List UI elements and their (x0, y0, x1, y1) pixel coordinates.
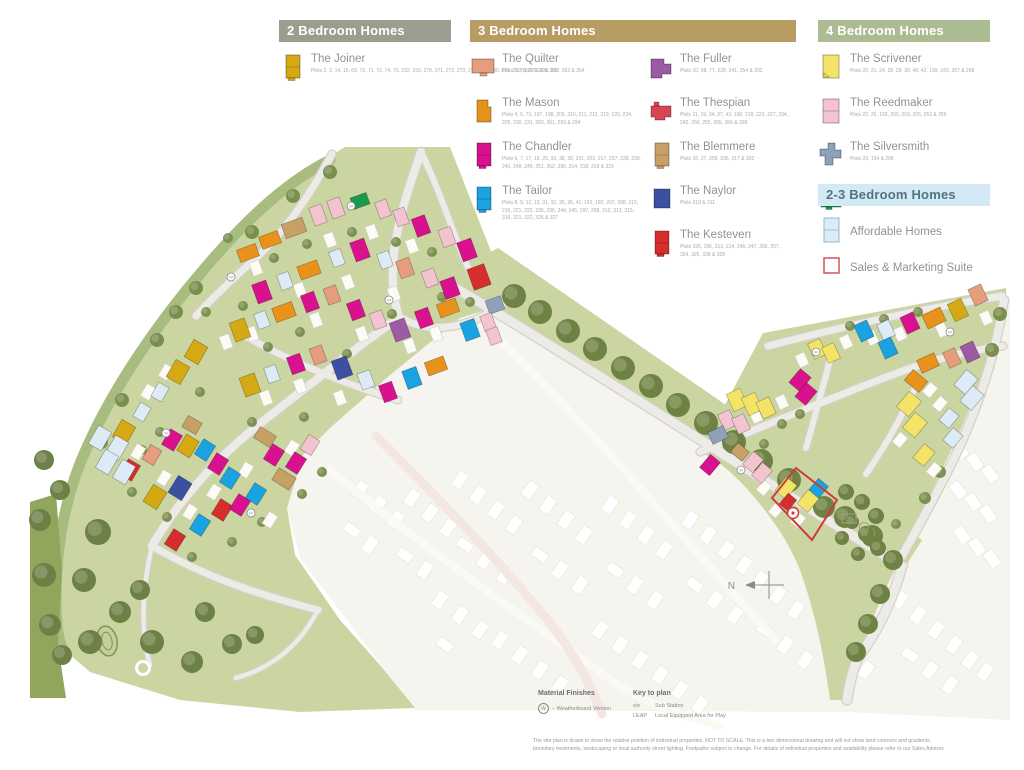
tree-highlight (80, 632, 93, 645)
tree-highlight (428, 248, 434, 254)
tree-highlight (585, 339, 598, 352)
tree-highlight (224, 234, 230, 240)
tree-highlight (287, 190, 295, 198)
key-item: LEAPLocal Equipped Area for Play (633, 713, 783, 719)
tree-highlight (318, 468, 324, 474)
roundabout (137, 662, 150, 675)
house-type-plots: Plots 23, 194 & 206 (850, 156, 980, 164)
house-type-the-naylor: The NaylorPlots 310 & 311 (648, 184, 796, 219)
legend-header-2bed: 2 Bedroom Homes (279, 20, 451, 42)
house-type-plots: Plots 20, 21, 24, 28, 29, 30, 40, 42, 19… (850, 68, 980, 76)
tree-highlight (298, 490, 304, 496)
tree-highlight (132, 582, 143, 593)
house-type-the-chandler: The ChandlerPlots 6, 7, 17, 18, 25, 33, … (470, 140, 648, 175)
tree-highlight (324, 166, 332, 174)
tree-highlight (264, 343, 270, 349)
weatherboard-badge-letter: W (249, 511, 253, 516)
house-type-name: The Fuller (680, 53, 796, 66)
tree-highlight (248, 628, 258, 638)
the-reedmaker-icon (818, 96, 844, 131)
legend-header-23bed: 2-3 Bedroom Homes (818, 184, 990, 206)
legend-section-3bed: 3 Bedroom Homes The QuilterPlots 1, 76, … (470, 20, 796, 272)
tree-highlight (641, 376, 654, 389)
tree-highlight (246, 226, 254, 234)
the-joiner-icon (279, 52, 305, 87)
legend-entries-3bed: The QuilterPlots 1, 76, 226, 229, 262, 2… (470, 52, 796, 272)
tree-highlight (558, 321, 571, 334)
leap-label: LEAP (856, 504, 868, 509)
key-item-abbr: LEAP (633, 713, 655, 719)
weatherboard-badge-letter: W (948, 330, 952, 335)
tree-highlight (920, 493, 927, 500)
the-scrivener-icon (818, 52, 844, 87)
tree-highlight (31, 511, 43, 523)
legend-entries-23bed: Affordable HomesSales & Marketing Suite (818, 216, 990, 288)
tree-highlight (300, 413, 306, 419)
tree-highlight (846, 322, 852, 328)
house-type-the-thespian: The ThespianPlots 11, 19, 34, 37, 43, 19… (648, 96, 796, 131)
sales-marketing-suite-icon (818, 251, 844, 286)
house-type-sales-marketing-suite: Sales & Marketing Suite (818, 252, 973, 284)
material-finishes-key: Material Finishes W– Weatherboard Versio… (538, 690, 628, 718)
tree-highlight (760, 440, 766, 446)
tree-highlight (188, 553, 194, 559)
tree-highlight (994, 308, 1002, 316)
house-type-plots: Plots 1, 76, 226, 229, 262, 263 & 264 (502, 68, 648, 76)
tree-highlight (142, 632, 155, 645)
house-type-the-blemmere: The BlemmerePlots 16, 27, 258, 295, 317 … (648, 140, 796, 175)
weatherboard-badge-letter: W (164, 431, 168, 436)
tree-highlight (880, 315, 886, 321)
tree-highlight (892, 520, 898, 526)
house-type-name: The Naylor (680, 185, 796, 198)
weatherboard-badge-letter: W (739, 468, 743, 473)
site-plan-page: WWWWWWWWLEAPN 2 Bedroom Homes The Joiner… (0, 0, 1024, 770)
legend-entries-2bed: The JoinerPlots 2, 3, 14, 15, 69, 70, 71… (279, 52, 451, 96)
affordable-homes-icon (818, 215, 844, 250)
house-type-name: Sales & Marketing Suite (850, 262, 973, 275)
tree-highlight (613, 358, 626, 371)
the-naylor-icon (648, 184, 674, 219)
house-type-plots: Plots 8, 9, 12, 13, 31, 32, 35, 36, 41, … (502, 200, 648, 223)
tree-highlight (224, 636, 235, 647)
weatherboard-badge-letter: W (387, 298, 391, 303)
material-finishes-title: Material Finishes (538, 690, 628, 697)
tree-highlight (872, 542, 881, 551)
key-item-label: Local Equipped Area for Play (655, 713, 726, 719)
house-type-the-mason: The MasonPlots 4, 5, 73, 197, 198, 209, … (470, 96, 648, 131)
tree-highlight (303, 240, 309, 246)
tree-highlight (914, 308, 920, 314)
house-type-the-quilter: The QuilterPlots 1, 76, 226, 229, 262, 2… (470, 52, 648, 87)
tree-highlight (986, 344, 994, 352)
tree-highlight (852, 548, 860, 556)
tree-highlight (36, 452, 47, 463)
key-item-abbr: s/s (633, 703, 655, 709)
house-type-plots: Plots 11, 19, 34, 37, 43, 190, 218, 223,… (680, 112, 796, 127)
the-thespian-icon (648, 96, 674, 131)
house-type-name: The Thespian (680, 97, 796, 110)
tree-highlight (392, 238, 398, 244)
house-type-the-tailor: The TailorPlots 8, 9, 12, 13, 31, 32, 35… (470, 184, 648, 223)
house-type-plots: Plots 22, 26, 193, 200, 203, 205, 253 & … (850, 112, 980, 120)
weatherboard-badge-letter: W (814, 350, 818, 355)
tree-highlight (88, 522, 102, 536)
weatherboard-icon: W (538, 703, 549, 714)
house-type-name: The Blemmere (680, 141, 796, 154)
the-fuller-icon (648, 52, 674, 87)
disclaimer-text: The site plan is drawn to show the relat… (533, 738, 951, 753)
material-finishes-items: W– Weatherboard Version (538, 703, 628, 714)
legend-header-4bed: 4 Bedroom Homes (818, 20, 990, 42)
house-type-plots: Plots 4, 5, 73, 197, 198, 209, 210, 211,… (502, 112, 648, 127)
house-type-name: The Tailor (502, 185, 648, 198)
tree-highlight (696, 413, 709, 426)
key-to-plan: Key to plan s/sSub StationLEAPLocal Equi… (633, 690, 783, 722)
the-kesteven-icon (648, 228, 674, 263)
house-type-plots: Plots 310 & 311 (680, 200, 796, 208)
the-blemmere-icon (648, 140, 674, 175)
key-item-label: Sub Station (655, 703, 683, 709)
tree-highlight (388, 310, 394, 316)
key-to-plan-title: Key to plan (633, 690, 783, 697)
tree-highlight (848, 644, 859, 655)
tree-highlight (438, 293, 444, 299)
tree-highlight (156, 428, 162, 434)
tree-highlight (343, 350, 349, 356)
tree-highlight (151, 334, 159, 342)
house-type-name: The Kesteven (680, 229, 796, 242)
house-type-plots: Plots 195, 196, 213, 214, 246, 247, 256,… (680, 244, 796, 259)
tree-highlight (504, 286, 517, 299)
tree-highlight (296, 328, 302, 334)
material-item: W– Weatherboard Version (538, 703, 628, 714)
tree-highlight (163, 513, 169, 519)
tree-highlight (202, 308, 208, 314)
tree-highlight (41, 616, 53, 628)
tree-highlight (348, 228, 354, 234)
key-to-plan-items: s/sSub StationLEAPLocal Equipped Area fo… (633, 703, 783, 719)
tree-highlight (190, 282, 198, 290)
tree-highlight (183, 653, 195, 665)
house-type-name: The Silversmith (850, 141, 980, 154)
house-type-the-kesteven: The KestevenPlots 195, 196, 213, 214, 24… (648, 228, 796, 263)
tree-highlight (885, 552, 896, 563)
house-type-the-reedmaker: The ReedmakerPlots 22, 26, 193, 200, 203… (818, 96, 980, 131)
tree-highlight (228, 538, 234, 544)
tree-highlight (530, 302, 543, 315)
tree-highlight (836, 532, 844, 540)
sales-suite-marker-dot (791, 511, 794, 514)
tree-highlight (872, 586, 883, 597)
tree-highlight (34, 565, 47, 578)
house-type-the-fuller: The FullerPlots 10, 68, 77, 228, 241, 25… (648, 52, 796, 87)
house-type-plots: Plots 10, 68, 77, 228, 241, 254 & 292 (680, 68, 796, 76)
house-type-name: The Mason (502, 97, 648, 110)
tree-highlight (466, 298, 472, 304)
tree-highlight (668, 395, 681, 408)
key-item: s/sSub Station (633, 703, 783, 709)
tree-highlight (870, 510, 879, 519)
tree-highlight (840, 486, 849, 495)
the-silversmith-icon (818, 140, 844, 175)
house-type-name: The Quilter (502, 53, 648, 66)
tree-highlight (796, 410, 802, 416)
house-type-the-silversmith: The SilversmithPlots 23, 194 & 206 (818, 140, 980, 175)
tree-highlight (128, 488, 134, 494)
tree-highlight (196, 388, 202, 394)
house-type-name: The Scrivener (850, 53, 980, 66)
tree-highlight (860, 616, 871, 627)
house-type-plots: Plots 16, 27, 258, 295, 317 & 320 (680, 156, 796, 164)
house-type-name: Affordable Homes (850, 226, 973, 239)
house-type-name: The Chandler (502, 141, 648, 154)
house-type-plots: Plots 6, 7, 17, 18, 25, 33, 38, 39, 201,… (502, 156, 648, 171)
tree-highlight (239, 302, 245, 308)
weatherboard-badge-letter: W (229, 275, 233, 280)
weatherboard-badge-letter: W (349, 204, 353, 209)
legend-header-3bed: 3 Bedroom Homes (470, 20, 796, 42)
tree-highlight (116, 394, 124, 402)
tree-highlight (248, 418, 254, 424)
tree-highlight (52, 482, 63, 493)
compass-north-label: N (728, 581, 735, 592)
the-quilter-icon (470, 52, 496, 87)
tree-highlight (170, 306, 178, 314)
the-chandler-icon (470, 140, 496, 175)
legend-section-2bed: 2 Bedroom Homes The JoinerPlots 2, 3, 14… (279, 20, 451, 96)
legend-section-23bed: 2-3 Bedroom Homes Affordable HomesSales … (818, 184, 990, 288)
tree-highlight (74, 570, 87, 583)
tree-highlight (270, 254, 276, 260)
the-tailor-icon (470, 184, 496, 223)
tree-highlight (778, 420, 784, 426)
house-type-name: The Reedmaker (850, 97, 980, 110)
tree-highlight (54, 647, 65, 658)
tree-highlight (111, 603, 123, 615)
tree-highlight (197, 604, 208, 615)
house-type-the-scrivener: The ScrivenerPlots 20, 21, 24, 28, 29, 3… (818, 52, 980, 87)
material-item-label: – Weatherboard Version (552, 706, 611, 712)
house-type-affordable-homes: Affordable Homes (818, 216, 973, 248)
the-mason-icon (470, 96, 496, 131)
